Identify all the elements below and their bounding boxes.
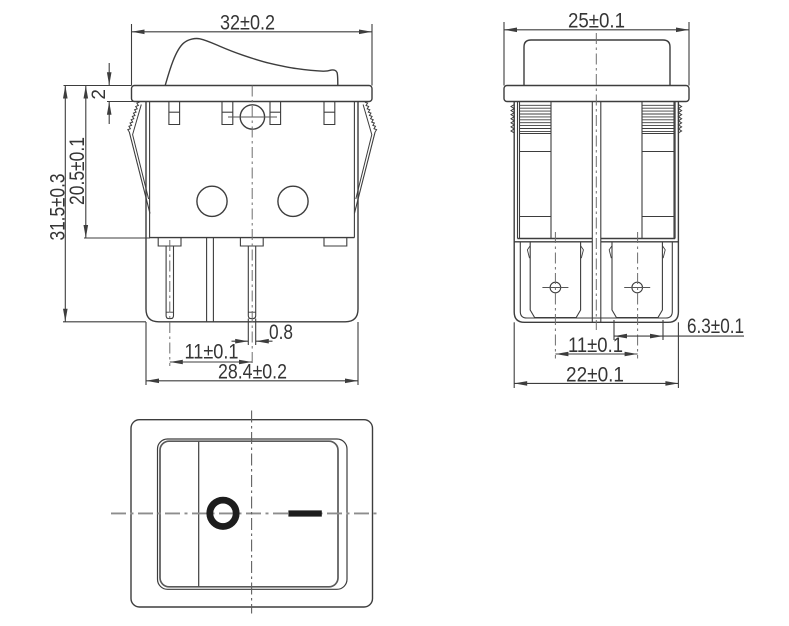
svg-text:11±0.1: 11±0.1 [568,334,623,357]
svg-text:0.8: 0.8 [269,321,293,344]
svg-text:2: 2 [89,89,110,100]
svg-text:31.5±0.3: 31.5±0.3 [46,174,69,241]
svg-text:32±0.2: 32±0.2 [220,11,275,34]
svg-text:20.5±0.1: 20.5±0.1 [66,137,89,205]
svg-text:22±0.1: 22±0.1 [566,364,624,387]
svg-text:25±0.1: 25±0.1 [568,9,625,32]
svg-text:6.3±0.1: 6.3±0.1 [687,315,744,338]
svg-text:28.4±0.2: 28.4±0.2 [218,361,287,384]
